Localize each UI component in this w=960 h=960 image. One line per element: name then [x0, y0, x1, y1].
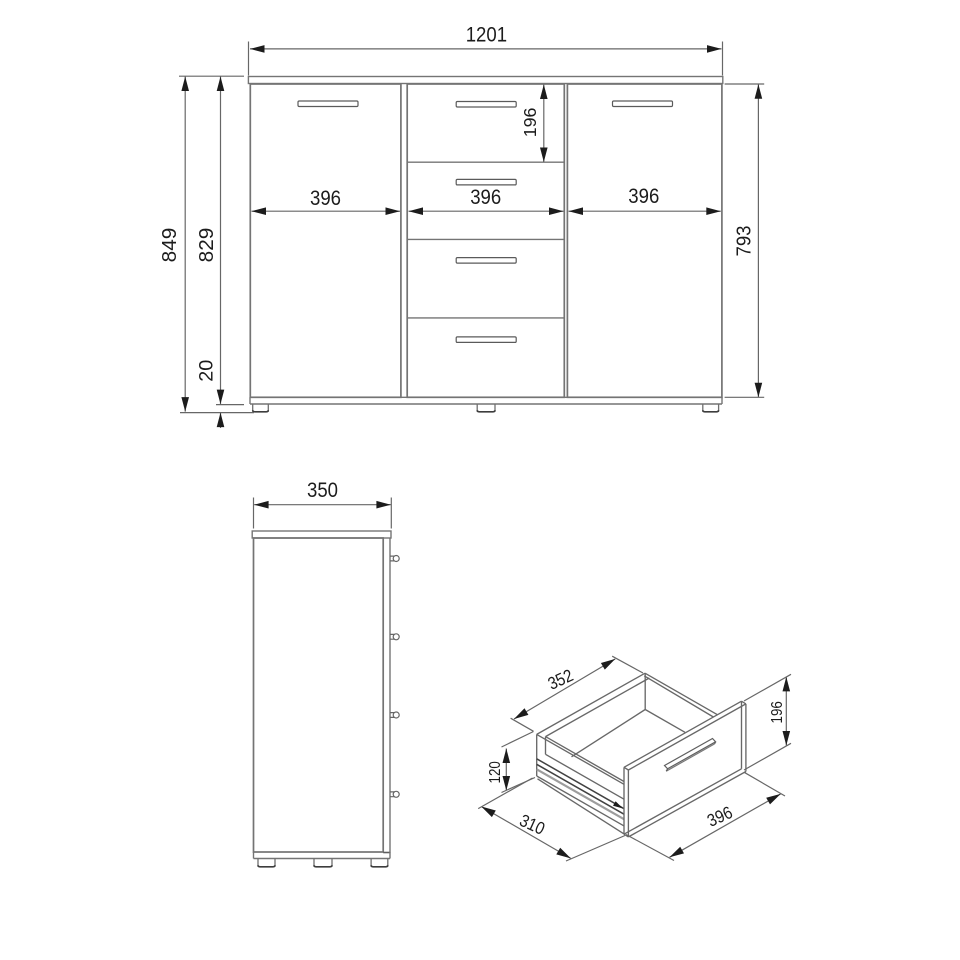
- svg-text:829: 829: [196, 228, 218, 263]
- svg-text:396: 396: [628, 185, 659, 208]
- svg-text:350: 350: [307, 479, 338, 502]
- svg-text:310: 310: [516, 811, 547, 839]
- svg-text:120: 120: [487, 761, 504, 783]
- svg-text:20: 20: [195, 360, 217, 382]
- svg-text:396: 396: [310, 187, 341, 210]
- svg-text:396: 396: [470, 186, 501, 209]
- svg-text:849: 849: [160, 228, 182, 263]
- svg-text:352: 352: [545, 666, 576, 694]
- svg-text:196: 196: [520, 107, 540, 137]
- svg-text:196: 196: [769, 701, 786, 723]
- svg-text:1201: 1201: [466, 23, 507, 46]
- svg-text:396: 396: [704, 803, 735, 831]
- svg-text:793: 793: [734, 225, 756, 256]
